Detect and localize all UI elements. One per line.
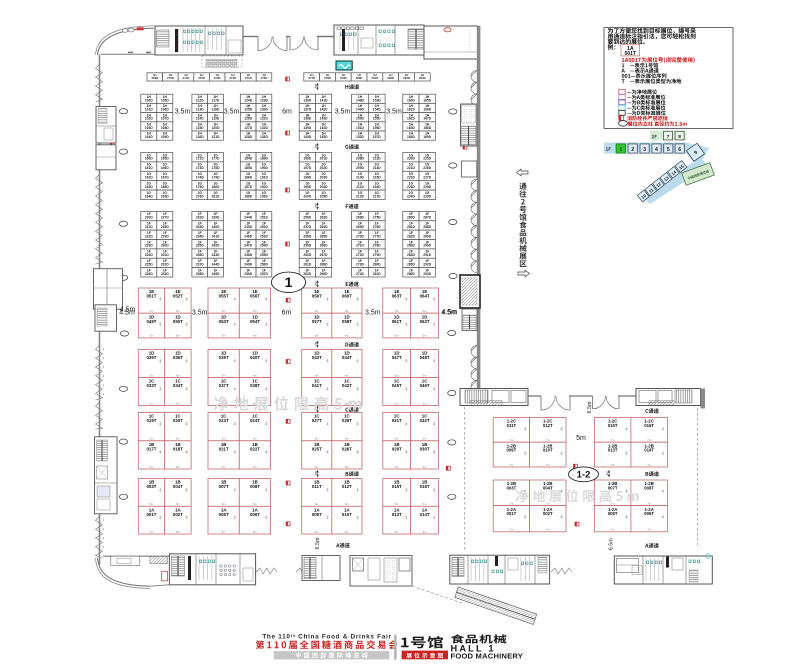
svg-text:5m: 5m bbox=[423, 465, 428, 469]
svg-text:5m: 5m bbox=[395, 334, 400, 338]
svg-text:4: 4 bbox=[655, 147, 658, 153]
svg-text:5m: 5m bbox=[423, 437, 428, 441]
svg-text:1-2B007T: 1-2B007T bbox=[608, 481, 618, 490]
svg-text:5m: 5m bbox=[150, 334, 155, 338]
svg-text:5m: 5m bbox=[423, 334, 428, 338]
svg-text:4m: 4m bbox=[313, 83, 317, 88]
svg-text:6m: 6m bbox=[222, 437, 227, 441]
svg-text:5m: 5m bbox=[395, 530, 400, 534]
svg-text:1-2C016T: 1-2C016T bbox=[644, 419, 654, 428]
svg-text:4m: 4m bbox=[313, 341, 317, 346]
svg-text:4m: 4m bbox=[313, 143, 317, 148]
svg-text:5m: 5m bbox=[176, 373, 181, 377]
svg-text:5m: 5m bbox=[150, 373, 155, 377]
svg-text:6m: 6m bbox=[282, 108, 292, 115]
svg-text:7m: 7m bbox=[546, 528, 551, 532]
svg-text:7m: 7m bbox=[647, 528, 652, 532]
svg-text:7m: 7m bbox=[611, 528, 616, 532]
svg-text:1-2: 1-2 bbox=[577, 470, 591, 481]
svg-text:5: 5 bbox=[667, 147, 670, 153]
svg-text:2: 2 bbox=[631, 147, 634, 153]
svg-text:7m: 7m bbox=[509, 438, 514, 442]
svg-text:6m: 6m bbox=[345, 502, 350, 506]
svg-text:6m: 6m bbox=[253, 334, 258, 338]
svg-text:6m: 6m bbox=[253, 465, 258, 469]
svg-text:1-2A006T: 1-2A006T bbox=[644, 507, 654, 516]
svg-text:5m: 5m bbox=[176, 334, 181, 338]
svg-text:6m: 6m bbox=[345, 465, 350, 469]
svg-text:FOOD MACHINERY: FOOD MACHINERY bbox=[451, 652, 524, 661]
svg-text:4m: 4m bbox=[313, 470, 317, 475]
svg-text:6m: 6m bbox=[253, 373, 258, 377]
svg-text:5m: 5m bbox=[423, 502, 428, 506]
svg-text:5m: 5m bbox=[423, 373, 428, 377]
svg-text:The 110th China Food & Drinks: The 110th China Food & Drinks Fair bbox=[262, 633, 391, 640]
svg-text:5m: 5m bbox=[395, 502, 400, 506]
svg-text:4m: 4m bbox=[605, 471, 609, 476]
svg-text:7: 7 bbox=[667, 134, 670, 140]
svg-text:6m: 6m bbox=[253, 530, 258, 534]
svg-text:5m: 5m bbox=[176, 530, 181, 534]
svg-text:6m: 6m bbox=[345, 437, 350, 441]
svg-text:1-2C012T: 1-2C012T bbox=[543, 419, 553, 428]
svg-text:3.5m: 3.5m bbox=[386, 108, 402, 115]
svg-text:1-2B008T: 1-2B008T bbox=[644, 481, 654, 490]
svg-text:7m: 7m bbox=[611, 438, 616, 442]
svg-text:6m: 6m bbox=[315, 309, 320, 313]
svg-text:6m: 6m bbox=[315, 373, 320, 377]
svg-text:7m: 7m bbox=[611, 463, 616, 467]
svg-text:6m: 6m bbox=[315, 465, 320, 469]
svg-text:5m: 5m bbox=[150, 401, 155, 405]
svg-text:6m: 6m bbox=[315, 334, 320, 338]
svg-text:6m: 6m bbox=[222, 530, 227, 534]
svg-text:7m: 7m bbox=[647, 463, 652, 467]
svg-text:1: 1 bbox=[285, 274, 293, 290]
svg-text:6m: 6m bbox=[253, 309, 258, 313]
svg-text:6m: 6m bbox=[222, 334, 227, 338]
svg-text:5m: 5m bbox=[576, 435, 586, 442]
svg-text:001T: 001T bbox=[625, 51, 636, 57]
svg-text:8: 8 bbox=[678, 134, 681, 140]
svg-text:7m: 7m bbox=[509, 528, 514, 532]
svg-text:3.5m: 3.5m bbox=[335, 108, 351, 115]
svg-text:5m: 5m bbox=[150, 309, 155, 313]
svg-text:1-2A002T: 1-2A002T bbox=[543, 507, 553, 516]
svg-text:7m: 7m bbox=[546, 463, 551, 467]
svg-text:1-2B013T: 1-2B013T bbox=[608, 443, 618, 452]
svg-text:6m: 6m bbox=[345, 334, 350, 338]
svg-text:6.5m: 6.5m bbox=[315, 537, 321, 549]
svg-text:4.5m: 4.5m bbox=[120, 307, 136, 314]
svg-text:5m: 5m bbox=[150, 502, 155, 506]
svg-text:1-2C011T: 1-2C011T bbox=[507, 419, 517, 428]
svg-text:5m: 5m bbox=[395, 309, 400, 313]
svg-text:6m: 6m bbox=[253, 502, 258, 506]
svg-text:5m: 5m bbox=[423, 530, 428, 534]
svg-text:6m: 6m bbox=[282, 310, 292, 317]
svg-text:5m: 5m bbox=[176, 465, 181, 469]
svg-text:6m: 6m bbox=[345, 373, 350, 377]
svg-text:1-2B009T: 1-2B009T bbox=[507, 443, 517, 452]
svg-text:4m: 4m bbox=[313, 203, 317, 208]
svg-text:5m: 5m bbox=[395, 373, 400, 377]
svg-text:4m: 4m bbox=[313, 281, 317, 286]
svg-text:7m: 7m bbox=[509, 463, 514, 467]
svg-text:5m: 5m bbox=[395, 465, 400, 469]
svg-text:7m: 7m bbox=[546, 438, 551, 442]
svg-text:1-2B010T: 1-2B010T bbox=[543, 443, 553, 452]
svg-text:7m: 7m bbox=[509, 501, 514, 505]
svg-text:1-2A001T: 1-2A001T bbox=[507, 507, 517, 516]
svg-text:6m: 6m bbox=[222, 309, 227, 313]
svg-text:3.5m: 3.5m bbox=[224, 108, 240, 115]
svg-text:1-2B003T: 1-2B003T bbox=[507, 481, 517, 490]
svg-text:1-2A005T: 1-2A005T bbox=[608, 507, 618, 516]
svg-text:6.5m: 6.5m bbox=[609, 538, 615, 550]
svg-text:7m: 7m bbox=[611, 501, 616, 505]
svg-text:1-2B014T: 1-2B014T bbox=[644, 443, 654, 452]
svg-text:3: 3 bbox=[643, 147, 646, 153]
svg-text:5m: 5m bbox=[176, 401, 181, 405]
svg-text:5m: 5m bbox=[423, 309, 428, 313]
svg-text:7m: 7m bbox=[546, 501, 551, 505]
svg-text:5m: 5m bbox=[395, 437, 400, 441]
svg-text:6m: 6m bbox=[315, 502, 320, 506]
svg-text:3.5m: 3.5m bbox=[365, 310, 381, 317]
svg-text:6m: 6m bbox=[315, 530, 320, 534]
svg-text:5m: 5m bbox=[150, 465, 155, 469]
svg-text:6m: 6m bbox=[315, 437, 320, 441]
svg-text:5m: 5m bbox=[395, 401, 400, 405]
svg-text:1-2B004T: 1-2B004T bbox=[543, 481, 553, 490]
svg-text:7m: 7m bbox=[647, 438, 652, 442]
svg-text:5m: 5m bbox=[176, 502, 181, 506]
svg-text:5m: 5m bbox=[176, 309, 181, 313]
svg-text:6m: 6m bbox=[222, 465, 227, 469]
svg-text:5m: 5m bbox=[176, 437, 181, 441]
svg-text:6m: 6m bbox=[345, 309, 350, 313]
svg-text:6.5m: 6.5m bbox=[587, 401, 593, 413]
svg-text:5m: 5m bbox=[150, 437, 155, 441]
svg-text:5m: 5m bbox=[423, 401, 428, 405]
svg-text:6m: 6m bbox=[253, 437, 258, 441]
svg-text:7m: 7m bbox=[647, 501, 652, 505]
svg-text:3.5m: 3.5m bbox=[175, 108, 191, 115]
svg-text:1-2C015T: 1-2C015T bbox=[608, 419, 618, 428]
svg-text:6m: 6m bbox=[345, 530, 350, 534]
svg-text:5m: 5m bbox=[150, 530, 155, 534]
svg-text:6: 6 bbox=[678, 147, 681, 153]
svg-text:3.5m: 3.5m bbox=[192, 310, 208, 317]
svg-text:1: 1 bbox=[619, 147, 622, 153]
svg-text:6m: 6m bbox=[222, 373, 227, 377]
svg-text:4.5m: 4.5m bbox=[442, 309, 458, 316]
svg-text:6m: 6m bbox=[222, 502, 227, 506]
svg-text:6m: 6m bbox=[345, 401, 350, 405]
